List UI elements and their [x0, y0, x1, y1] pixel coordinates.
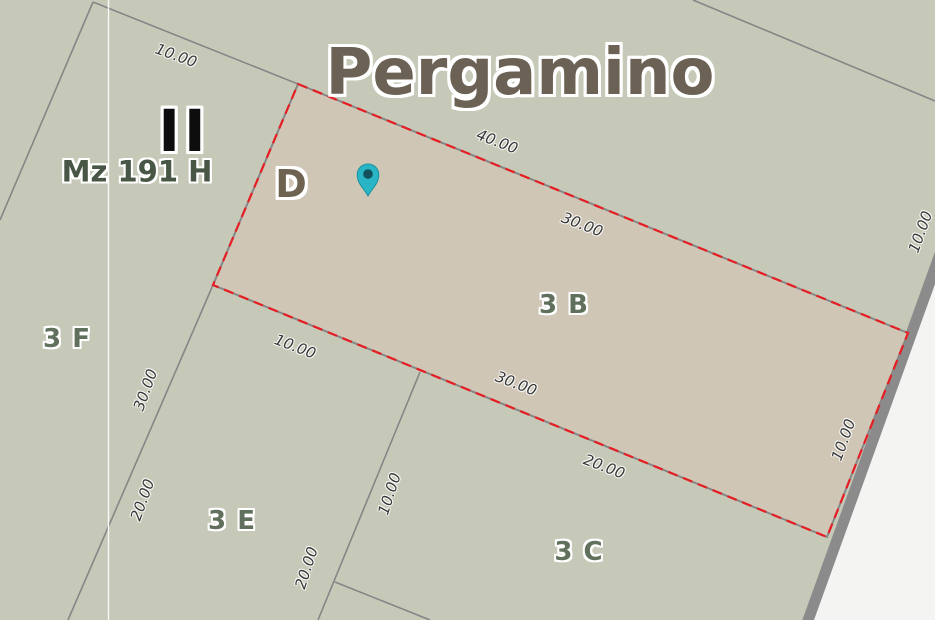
city-title: Pergamino	[325, 41, 714, 105]
parcel-label-3c: 3 C	[554, 539, 603, 565]
map-canvas[interactable]: Pergamino Mz 191 H II D 3 B 3 F 3 E 3 C …	[0, 0, 935, 620]
sub-parcel-label-d: D	[275, 165, 307, 203]
pin-dot	[363, 169, 373, 179]
parcel-label-3b: 3 B	[539, 292, 589, 318]
parcel-label-3e: 3 E	[208, 508, 256, 534]
parcel-label-3f: 3 F	[43, 326, 91, 352]
roman-numeral-label: II	[158, 102, 209, 160]
